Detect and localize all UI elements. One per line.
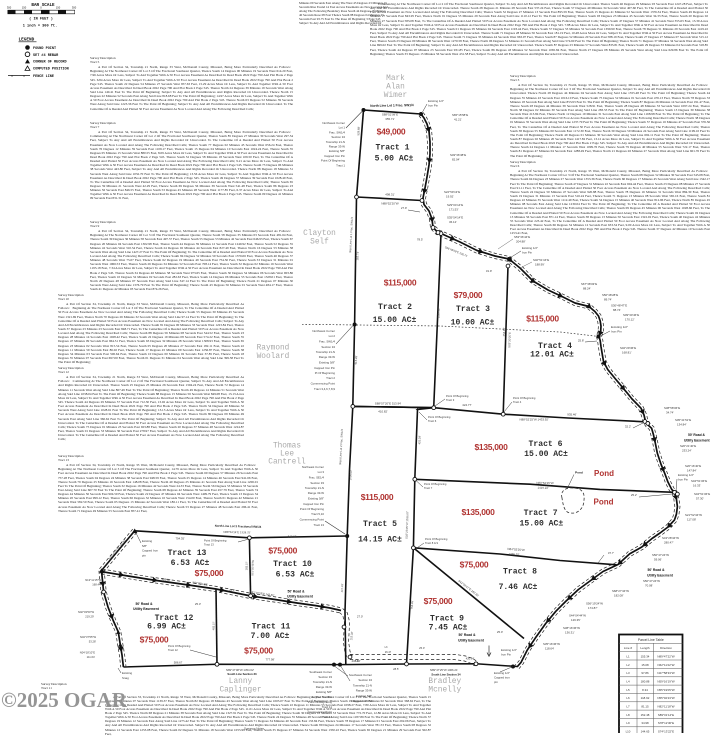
svg-text:8.34: 8.34 [642, 688, 648, 692]
svg-text:182.08': 182.08' [614, 593, 624, 597]
svg-text:S35°54'14"E: S35°54'14"E [447, 216, 463, 220]
svg-text:53.28': 53.28' [89, 639, 97, 643]
svg-text:( IN FEET ): ( IN FEET ) [29, 17, 53, 22]
svg-text:81.15: 81.15 [641, 705, 649, 709]
svg-text:S89°01'14"E: S89°01'14"E [658, 713, 674, 717]
svg-text:Lanny: Lanny [229, 678, 253, 686]
svg-text:S20°21'40"E: S20°21'40"E [680, 444, 696, 448]
svg-text:Section 33: Section 33 [310, 481, 324, 485]
svg-text:Township 21-N: Township 21-N [316, 350, 335, 354]
svg-text:Capped Iron Pin: Capped Iron Pin [303, 502, 324, 506]
svg-text:S44°04'44"W: S44°04'44"W [569, 614, 586, 618]
svg-text:$75,000: $75,000 [268, 545, 297, 555]
svg-text:$135,000: $135,000 [474, 442, 508, 452]
svg-text:168.81': 168.81' [622, 350, 632, 354]
svg-text:233.24': 233.24' [682, 448, 692, 452]
svg-text:150: 150 [56, 6, 61, 10]
svg-text:50' Road &: 50' Road & [136, 602, 154, 606]
svg-text:N43°41'25"W 162.43': N43°41'25"W 162.43' [108, 538, 127, 561]
svg-text:358.82': 358.82' [502, 327, 506, 337]
svg-text:S68°27'34"W: S68°27'34"W [612, 589, 629, 593]
svg-text:15.00 AC±: 15.00 AC± [524, 450, 568, 459]
svg-text:Range 33-W: Range 33-W [308, 491, 324, 495]
svg-text:Existing 5/8": Existing 5/8" [319, 361, 335, 365]
svg-text:S65°15'58"E: S65°15'58"E [452, 113, 468, 117]
svg-text:Tract 9: Tract 9 [430, 615, 464, 624]
svg-text:N59°16'19"W: N59°16'19"W [657, 679, 674, 683]
svg-text:Caplinger: Caplinger [219, 687, 261, 695]
svg-text:N89°47'08"W 1354.62': N89°47'08"W 1354.62' [226, 668, 255, 672]
svg-text:59.06': 59.06' [654, 557, 662, 561]
svg-text:Northwest Corner: Northwest Corner [312, 329, 335, 333]
svg-text:S20°16'40"E: S20°16'40"E [685, 464, 701, 468]
svg-text:S02°29'36"E: S02°29'36"E [620, 346, 636, 350]
svg-text:L7: L7 [626, 705, 630, 709]
svg-text:North Line Lot 1 Frac. SW1/4: North Line Lot 1 Frac. SW1/4 [370, 103, 414, 108]
svg-text:Point Of Beginning: Point Of Beginning [425, 537, 448, 541]
svg-text:1419.22': 1419.22' [537, 486, 549, 490]
svg-text:88.24': 88.24' [583, 286, 591, 290]
svg-text:Point Of Beginning: Point Of Beginning [321, 159, 345, 163]
svg-text:Direction: Direction [660, 646, 672, 650]
svg-text:Mcnelly: Mcnelly [428, 687, 461, 695]
svg-text:754.05': 754.05' [410, 600, 414, 610]
svg-text:34.98: 34.98 [641, 721, 649, 725]
svg-text:South Line Section 33: South Line Section 33 [227, 672, 257, 676]
svg-text:S43°28'34"W: S43°28'34"W [662, 536, 679, 540]
svg-text:7.00 AC±: 7.00 AC± [251, 632, 290, 641]
svg-text:144.65: 144.65 [641, 730, 650, 734]
svg-text:Existing 1/2": Existing 1/2" [428, 99, 444, 103]
svg-text:Capped Iron Pin: Capped Iron Pin [351, 699, 372, 703]
svg-text:Tract 4: Tract 4 [513, 400, 522, 404]
svg-text:7.45 AC±: 7.45 AC± [429, 623, 468, 632]
svg-text:$79,000: $79,000 [454, 290, 483, 300]
svg-text:16.33': 16.33' [693, 483, 701, 487]
svg-text:Section 33: Section 33 [318, 675, 332, 679]
svg-text:Utility Easement: Utility Easement [133, 607, 160, 611]
svg-text:19.92': 19.92' [446, 194, 454, 198]
svg-text:S78°12'30"E: S78°12'30"E [658, 721, 674, 725]
svg-text:Point Of Beginning: Point Of Beginning [168, 644, 191, 648]
svg-text:L8: L8 [626, 713, 630, 717]
svg-text:N82°11'18"W: N82°11'18"W [658, 705, 675, 709]
svg-text:6.99 AC±: 6.99 AC± [147, 623, 186, 632]
svg-text:Frac. SW1/4: Frac. SW1/4 [329, 130, 345, 134]
svg-text:Utility Easement: Utility Easement [684, 439, 711, 443]
svg-text:Section 34: Section 34 [331, 135, 345, 139]
svg-text:Existing 1/2": Existing 1/2" [501, 648, 517, 652]
svg-text:N02°03'50"W: N02°03'50"W [78, 610, 94, 614]
svg-text:S30°48'47"E: S30°48'47"E [611, 304, 627, 308]
svg-text:188.99': 188.99' [535, 262, 545, 266]
svg-text:25.2': 25.2' [631, 493, 638, 497]
svg-text:6.53 AC±: 6.53 AC± [171, 559, 210, 568]
svg-text:Point Of Beginning: Point Of Beginning [424, 482, 447, 486]
svg-text:Utility Easement: Utility Easement [647, 574, 674, 578]
svg-text:Commencing Point: Commencing Point [308, 710, 333, 714]
svg-text:Existing 1/2": Existing 1/2" [522, 246, 538, 250]
svg-text:N62°11'22"W: N62°11'22"W [658, 663, 675, 667]
svg-text:Existing 5/8": Existing 5/8" [356, 694, 372, 698]
svg-text:50' Road &: 50' Road & [688, 433, 706, 437]
svg-text:$115,000: $115,000 [526, 314, 559, 324]
svg-text:Tract 6: Tract 6 [529, 440, 563, 449]
svg-text:L9: L9 [626, 721, 630, 725]
svg-text:Range 33-W: Range 33-W [319, 355, 335, 359]
svg-text:Section 34: Section 34 [321, 345, 335, 349]
svg-text:25.3': 25.3' [195, 602, 202, 606]
svg-text:Existing: Existing [142, 539, 153, 543]
svg-text:Existing 1/2": Existing 1/2" [494, 671, 510, 675]
svg-text:$75,000: $75,000 [244, 645, 273, 655]
svg-text:Range 33-W: Range 33-W [356, 689, 372, 693]
svg-text:Lot 3: Lot 3 [318, 470, 325, 474]
svg-text:S50°47'24"W: S50°47'24"W [652, 553, 669, 557]
svg-text:N88°52'25"W: N88°52'25"W [536, 481, 554, 485]
svg-text:174.87': 174.87' [588, 606, 598, 610]
svg-text:Lee: Lee [280, 451, 294, 459]
svg-text:FOUND POINT: FOUND POINT [33, 47, 56, 51]
svg-text:31.9': 31.9' [486, 269, 493, 273]
svg-text:Thomas: Thomas [273, 443, 301, 451]
svg-text:183.07': 183.07' [244, 561, 248, 570]
svg-text:Tract 10: Tract 10 [273, 560, 312, 569]
svg-text:N55°02'23"W: N55°02'23"W [657, 696, 674, 700]
svg-text:Surveyor Notes: Surveyor Notes [244, 727, 264, 731]
svg-text:S02°23'05"W 1536.07': S02°23'05"W 1536.07' [405, 510, 410, 538]
svg-text:50' Road &: 50' Road & [648, 568, 666, 572]
svg-text:S35°16'36"W: S35°16'36"W [543, 642, 560, 646]
svg-text:S09°30'46"E: S09°30'46"E [623, 313, 639, 317]
svg-text:15.00 AC±: 15.00 AC± [520, 519, 564, 528]
svg-text:57.30': 57.30' [696, 496, 704, 500]
svg-text:483.07': 483.07' [211, 621, 215, 630]
svg-text:Tract 13: Tract 13 [314, 523, 325, 527]
svg-text:L10: L10 [626, 730, 631, 734]
svg-text:204.88': 204.88' [516, 239, 526, 243]
svg-text:N27°58'33"W: N27°58'33"W [657, 671, 674, 675]
svg-text:S56°19'24"W: S56°19'24"W [586, 602, 603, 606]
svg-text:S05°41'51"E: S05°41'51"E [675, 418, 691, 422]
svg-text:12.01 AC±: 12.01 AC± [530, 351, 574, 360]
svg-text:S21°52'34"W: S21°52'34"W [685, 513, 702, 517]
svg-text:Capped iron: Capped iron [494, 676, 510, 680]
svg-text:$135,000: $135,000 [461, 507, 495, 517]
svg-text:Township 21-N: Township 21-N [326, 140, 345, 144]
svg-text:Existing 1/2": Existing 1/2" [611, 325, 628, 329]
svg-text:134.84': 134.84' [677, 422, 687, 426]
svg-text:$115,000: $115,000 [361, 492, 394, 502]
svg-text:Range 33-W: Range 33-W [316, 685, 332, 689]
svg-text:FENCE LINE: FENCE LINE [33, 75, 54, 79]
svg-text:Tract 6: Tract 6 [428, 419, 437, 423]
svg-text:L1: L1 [626, 654, 630, 658]
svg-text:935.46': 935.46' [567, 413, 577, 417]
svg-text:Pond: Pond [594, 469, 614, 478]
svg-text:37.7': 37.7' [608, 551, 615, 555]
svg-text:Frac. SE1/4: Frac. SE1/4 [309, 476, 325, 480]
svg-text:25.0': 25.0' [497, 630, 504, 634]
svg-text:152.48: 152.48 [641, 713, 650, 717]
svg-text:$75,000: $75,000 [140, 635, 169, 645]
svg-text:Point Of Beginning: Point Of Beginning [428, 415, 451, 419]
svg-text:Point Of Beginning: Point Of Beginning [513, 396, 536, 400]
svg-text:586.67: 586.67 [174, 661, 183, 665]
svg-text:Self: Self [310, 239, 329, 247]
svg-text:170.12': 170.12' [625, 317, 635, 321]
svg-text:97.86: 97.86 [641, 671, 649, 675]
svg-text:152.32': 152.32' [349, 631, 354, 641]
svg-text:1056.02': 1056.02' [348, 469, 353, 480]
svg-text:Clayton: Clayton [303, 230, 336, 238]
svg-text:pin: pin [494, 680, 498, 684]
svg-text:5/8": 5/8" [142, 544, 147, 548]
svg-text:Pond: Pond [594, 498, 614, 507]
svg-text:88.74': 88.74' [613, 308, 621, 312]
svg-text:Tract 2: Tract 2 [326, 376, 335, 380]
svg-text:Tract 3: Tract 3 [446, 398, 455, 402]
svg-text:Pond: Pond [575, 471, 583, 475]
svg-text:N55°19'05"W: N55°19'05"W [657, 688, 674, 692]
svg-text:25.8': 25.8' [578, 339, 585, 343]
svg-text:Capped Iron Pin: Capped Iron Pin [311, 695, 332, 699]
svg-text:Utility Easement: Utility Easement [458, 639, 485, 643]
svg-text:280.47': 280.47' [664, 540, 674, 544]
svg-text:Range 33-W: Range 33-W [329, 145, 345, 149]
svg-text:N88°52'25"W 1433.92': N88°52'25"W 1433.92' [520, 418, 549, 422]
svg-text:Iron Pin: Iron Pin [522, 251, 532, 255]
svg-text:Alan: Alan [386, 84, 405, 92]
svg-text:Southeast Corner: Southeast Corner [309, 670, 332, 674]
svg-text:50' Road &: 50' Road & [459, 633, 477, 637]
svg-text:78.5': 78.5' [417, 238, 424, 242]
svg-text:168.44': 168.44' [92, 582, 101, 586]
svg-text:182.74': 182.74' [355, 251, 359, 261]
svg-text:Township 21-N: Township 21-N [353, 683, 372, 687]
svg-text:Raymond: Raymond [257, 345, 290, 353]
svg-text:Commencing Point: Commencing Point [300, 518, 325, 522]
svg-text:Iron Pin: Iron Pin [678, 478, 688, 482]
svg-text:Tract 11: Tract 11 [252, 623, 291, 632]
svg-text:1122.32': 1122.32' [436, 307, 440, 318]
svg-text:L6: L6 [626, 696, 630, 700]
svg-text:S49°36'38"E: S49°36'38"E [450, 153, 466, 157]
svg-text:Iron Pin: Iron Pin [611, 330, 622, 334]
svg-text:SET #4 REBAR: SET #4 REBAR [33, 54, 59, 58]
svg-text:1355.92': 1355.92' [508, 552, 520, 557]
svg-text:Tract 1: Tract 1 [376, 144, 410, 153]
svg-text:41.21': 41.21' [454, 117, 462, 121]
svg-text:Tract 5: Tract 5 [363, 520, 397, 529]
svg-text:S42°26'47"E 282.82': S42°26'47"E 282.82' [457, 579, 480, 598]
svg-text:Point Of Beginning: Point Of Beginning [446, 394, 469, 398]
svg-text:L2: L2 [626, 663, 630, 667]
svg-text:COMPUTED POSITION: COMPUTED POSITION [33, 68, 69, 72]
svg-text:171.53': 171.53' [449, 207, 459, 211]
svg-text:S38°58'06"E: S38°58'06"E [664, 406, 680, 410]
svg-text:S02°20'25"E: S02°20'25"E [507, 332, 512, 348]
svg-text:$49,000: $49,000 [377, 127, 406, 137]
svg-text:Point Of Beginning: Point Of Beginning [308, 700, 332, 704]
svg-text:89.74': 89.74' [604, 297, 612, 301]
svg-text:300: 300 [7, 6, 12, 10]
svg-text:Capped Iron Pin: Capped Iron Pin [324, 154, 345, 158]
svg-text:15.00 AC±: 15.00 AC± [373, 316, 417, 325]
svg-text:Township 21-N: Township 21-N [305, 486, 324, 490]
svg-text:82.04': 82.04' [452, 157, 460, 161]
svg-text:S22°59'13"E: S22°59'13"E [444, 190, 460, 194]
svg-text:x: x [23, 74, 25, 78]
svg-text:Mark: Mark [386, 75, 405, 83]
svg-text:219.29': 219.29' [85, 614, 94, 618]
svg-text:S88°57'20"E 513.94': S88°57'20"E 513.94' [375, 402, 402, 406]
svg-text:Capped Iron Pin: Capped Iron Pin [314, 366, 335, 370]
svg-text:$75,000: $75,000 [195, 568, 224, 578]
svg-text:410.82': 410.82' [378, 410, 388, 414]
svg-text:Tract 5,10: Tract 5,10 [311, 512, 324, 516]
svg-text:S29°04'14"E: S29°04'14"E [447, 203, 463, 207]
svg-text:Existing: Existing [122, 671, 133, 675]
svg-text:S53°36'44"E: S53°36'44"E [514, 235, 530, 239]
svg-text:Township 21-N: Township 21-N [313, 680, 332, 684]
svg-text:Iron Pin: Iron Pin [428, 104, 438, 108]
svg-text:Tract 2: Tract 2 [378, 303, 412, 312]
svg-text:14.15 AC±: 14.15 AC± [358, 536, 402, 545]
svg-text:Lot 2: Lot 2 [329, 334, 336, 338]
svg-text:777.98': 777.98' [265, 658, 275, 662]
svg-text:Iron Pin: Iron Pin [501, 653, 511, 657]
svg-text:Length: Length [640, 646, 650, 650]
svg-text:CORNER OF RECORD: CORNER OF RECORD [33, 61, 67, 65]
svg-text:25.0': 25.0' [229, 588, 235, 592]
svg-text:Northwest Corner: Northwest Corner [322, 121, 345, 125]
svg-text:180.88: 180.88 [641, 679, 650, 683]
svg-text:Frac. SW1/4: Frac. SW1/4 [319, 340, 335, 344]
svg-text:Tract 12: Tract 12 [322, 715, 333, 719]
svg-text:S74°13'22"E: S74°13'22"E [658, 730, 674, 734]
svg-text:Tract 7: Tract 7 [524, 509, 558, 518]
svg-text:26.47: 26.47 [385, 651, 392, 654]
svg-text:7.46 AC±: 7.46 AC± [499, 583, 538, 592]
svg-text:Tract 13: Tract 13 [204, 543, 214, 547]
svg-text:28.5': 28.5' [393, 667, 399, 671]
svg-text:5.00 AC±: 5.00 AC± [375, 155, 414, 164]
svg-text:S01°05'46"W: S01°05'46"W [250, 560, 255, 576]
svg-text:N04°18'10"E: N04°18'10"E [80, 651, 95, 655]
svg-text:$115,000: $115,000 [384, 278, 417, 288]
svg-text:420.34': 420.34' [466, 657, 475, 661]
svg-text:S04°51'06"E: S04°51'06"E [694, 492, 710, 496]
svg-text:118.92: 118.92 [641, 696, 650, 700]
svg-text:S66°48'09"E 236.71': S66°48'09"E 236.71' [444, 245, 469, 258]
svg-text:Tract 12: Tract 12 [168, 648, 178, 652]
svg-text:N88°52'20"W: N88°52'20"W [381, 202, 398, 206]
svg-text:pin: pin [142, 553, 146, 557]
svg-text:N88°54'14"E 1328.75': N88°54'14"E 1328.75' [223, 530, 251, 535]
svg-text:$75,000: $75,000 [424, 596, 453, 606]
svg-text:N04°37'55"W: N04°37'55"W [80, 635, 96, 639]
svg-text:Snag: Snag [122, 676, 129, 680]
svg-text:25.0': 25.0' [419, 646, 425, 650]
svg-text:S40°51'16"E: S40°51'16"E [533, 258, 549, 262]
svg-text:540.67: 540.67 [288, 535, 297, 539]
svg-text:BAR SCALE: BAR SCALE [31, 3, 55, 8]
svg-text:1 inch = 300 ft.: 1 inch = 300 ft. [23, 24, 58, 29]
svg-text:126.35': 126.35' [571, 618, 581, 622]
svg-text:S38°16'36"W: S38°16'36"W [563, 626, 580, 630]
svg-text:498.31': 498.31' [385, 193, 395, 197]
svg-text:Tract 11: Tract 11 [322, 705, 333, 709]
svg-text:S67°38'03"E: S67°38'03"E [581, 282, 597, 286]
svg-text:Line #: Line # [624, 646, 633, 650]
svg-text:N89°47'22"W: N89°47'22"W [657, 654, 674, 658]
svg-text:Cantrell: Cantrell [268, 459, 306, 467]
svg-text:Existing 5/8": Existing 5/8" [308, 497, 324, 501]
svg-text:6.53 AC±: 6.53 AC± [276, 570, 315, 579]
svg-text:15.08: 15.08 [641, 663, 649, 667]
svg-text:N13°11'15"W: N13°11'15"W [85, 578, 101, 582]
svg-text:136.31': 136.31' [565, 630, 575, 634]
svg-text:L3: L3 [385, 646, 388, 649]
svg-text:Tract 3: Tract 3 [456, 305, 490, 314]
svg-text:Point Of Beginning: Point Of Beginning [300, 507, 324, 511]
svg-text:West Line Lot 2 Frac. SW1/4: West Line Lot 2 Frac. SW1/4 [338, 429, 344, 465]
svg-text:L5: L5 [626, 688, 630, 692]
svg-text:27.9': 27.9' [401, 206, 408, 210]
svg-text:355.71': 355.71' [385, 117, 395, 121]
svg-text:Woolard: Woolard [257, 353, 290, 361]
svg-text:Commencing Point: Commencing Point [311, 382, 336, 386]
svg-text:Existing 1/2": Existing 1/2" [678, 473, 694, 477]
svg-text:27.0': 27.0' [357, 615, 364, 619]
svg-text:117.08': 117.08' [687, 517, 697, 521]
svg-text:Utility Easement: Utility Easement [287, 595, 314, 599]
svg-text:32.2': 32.2' [625, 425, 632, 429]
svg-text:Southwest Corner: Southwest Corner [349, 673, 372, 677]
svg-text:North Line Lot 3 Fractional NW: North Line Lot 3 Fractional NW1/4 [215, 524, 262, 529]
svg-text:Existing 5/8": Existing 5/8" [316, 690, 332, 694]
svg-text:Pt Of Beginning: Pt Of Beginning [315, 371, 336, 375]
svg-text:407.03': 407.03' [340, 583, 344, 592]
svg-text:915.28': 915.28' [354, 355, 358, 365]
svg-text:Lot 1: Lot 1 [339, 126, 346, 130]
svg-text:L4: L4 [626, 679, 630, 683]
svg-text:Tract 8: Tract 8 [503, 568, 537, 577]
svg-text:794.35': 794.35' [175, 537, 185, 541]
svg-text:Bradley: Bradley [428, 678, 461, 686]
svg-text:Tract 8 & 9: Tract 8 & 9 [425, 541, 439, 545]
svg-text:111.64': 111.64' [87, 655, 96, 659]
svg-text:$75,000: $75,000 [460, 560, 489, 570]
svg-text:528.68': 528.68' [356, 126, 360, 136]
svg-text:118.64': 118.64' [545, 646, 555, 650]
svg-text:425.29': 425.29' [417, 435, 421, 445]
svg-text:150: 150 [22, 6, 27, 10]
svg-text:155.34: 155.34 [641, 654, 650, 658]
svg-text:300: 300 [72, 6, 77, 10]
svg-text:36.12': 36.12' [449, 220, 457, 224]
svg-text:424.77': 424.77' [462, 403, 472, 407]
svg-text:Tract 3,4,6,7,8,9: Tract 3,4,6,7,8,9 [314, 387, 335, 391]
svg-text:Wimer: Wimer [384, 92, 407, 100]
svg-text:West Line Lot 1 Frac. SW1/4: West Line Lot 1 Frac. SW1/4 [348, 217, 354, 253]
svg-text:Existing 5/8": Existing 5/8" [329, 149, 345, 153]
svg-text:Tract 7: Tract 7 [424, 486, 433, 490]
svg-text:50' Road &: 50' Road & [288, 590, 306, 594]
svg-text:10.00 AC±: 10.00 AC± [451, 319, 495, 328]
svg-text:Tract 1: Tract 1 [336, 163, 345, 167]
